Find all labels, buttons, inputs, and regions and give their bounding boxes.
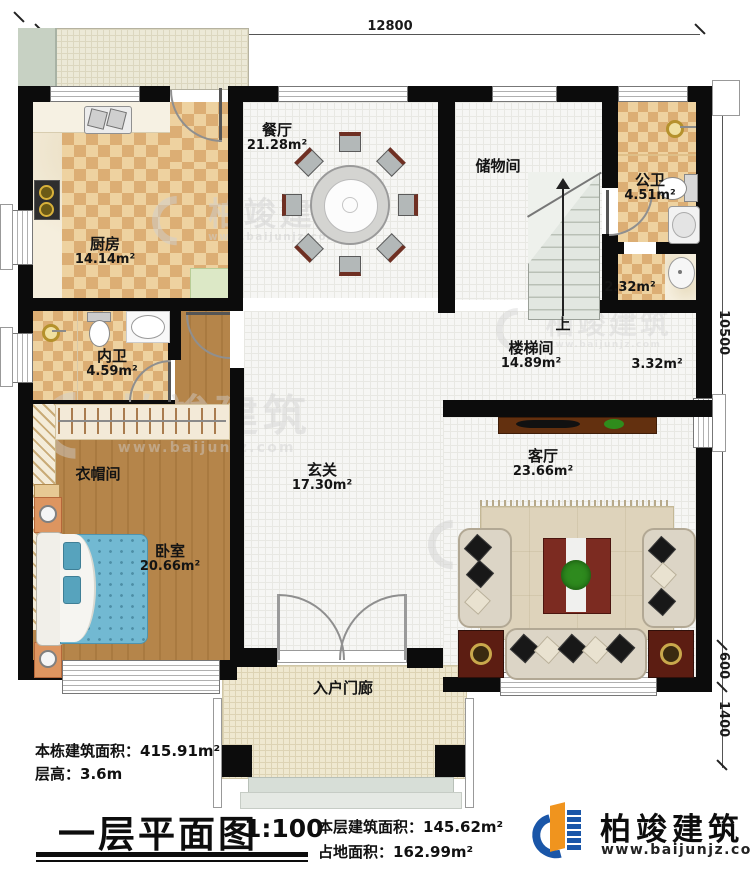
- tv-icon: [516, 420, 580, 428]
- wall: [602, 102, 618, 188]
- porch-side-rail: [465, 698, 474, 808]
- wall: [408, 86, 492, 102]
- label-inner-bath: 内卫 4.59m²: [86, 348, 137, 380]
- logo-building-orange: [550, 802, 565, 852]
- plant-icon: [561, 560, 591, 590]
- porch-pillar: [435, 745, 465, 777]
- wall: [140, 86, 170, 102]
- terrace-planter: [18, 28, 57, 88]
- toilet-icon: [89, 320, 110, 347]
- window: [492, 86, 557, 102]
- wall: [688, 86, 712, 102]
- floor-plan-canvas: 12800 10500 600 1400 柏竣建筑 www.baijunjz.c…: [0, 0, 750, 870]
- plan-title: 一层平面图: [58, 804, 258, 858]
- brand-logo-icon: [532, 802, 594, 862]
- label-foyer: 玄关 17.30m²: [292, 462, 352, 494]
- wall: [590, 300, 712, 313]
- sink-icon: [131, 315, 165, 339]
- wall: [228, 86, 278, 102]
- dining-table-center: [342, 197, 358, 213]
- wall: [438, 102, 455, 313]
- bed-pillow: [63, 576, 81, 604]
- wall: [230, 368, 244, 660]
- shower-arm: [52, 330, 66, 332]
- porch-step-2: [240, 792, 462, 809]
- building-area-note: 本栋建筑面积：415.91m²: [35, 740, 220, 761]
- wall: [18, 102, 33, 210]
- lamp-icon: [660, 643, 682, 665]
- wall: [557, 86, 618, 102]
- window: [50, 86, 140, 102]
- shower-head-icon: [666, 120, 684, 138]
- brand-url: www.baijunjz.com: [601, 842, 750, 858]
- rack-rod: [58, 420, 226, 422]
- plan-scale: 1:100: [244, 814, 324, 843]
- lamp-icon: [470, 643, 492, 665]
- footprint-note: 占地面积：162.99m²: [318, 841, 473, 862]
- dimension-top-width: 12800: [367, 19, 412, 34]
- wall: [18, 383, 33, 660]
- stove-burner: [39, 185, 54, 200]
- dimension-tick: [13, 11, 24, 22]
- bath-divider-line: [77, 311, 78, 400]
- wall: [407, 648, 443, 668]
- window: [618, 86, 688, 102]
- ac-platform: [712, 80, 740, 116]
- stairs-up-arrow: [556, 178, 570, 189]
- dining-chair: [339, 256, 361, 276]
- label-kitchen: 厨房 14.14m²: [75, 236, 135, 268]
- washer-drum: [672, 212, 696, 238]
- stairs-direction-line: [562, 188, 564, 316]
- dimension-right-bottom: 1400: [716, 701, 731, 737]
- window-sill: [0, 327, 13, 387]
- shower-head-icon: [42, 324, 60, 342]
- lamp-icon: [39, 505, 57, 523]
- wall: [443, 677, 500, 692]
- wall: [18, 86, 50, 102]
- window: [12, 333, 33, 383]
- window: [12, 210, 33, 265]
- label-bedroom: 卧室 20.66m²: [140, 543, 200, 575]
- wall: [696, 102, 712, 398]
- dining-chair: [339, 132, 361, 152]
- label-public-bath: 公卫 4.51m²: [624, 172, 675, 204]
- wall: [443, 400, 712, 417]
- label-storage: 储物间: [475, 158, 520, 175]
- window: [62, 660, 220, 694]
- label-cloakroom: 衣帽间: [75, 466, 120, 483]
- kitchen-mat: [190, 268, 230, 300]
- window: [278, 86, 408, 102]
- label-dining: 餐厅 21.28m²: [247, 122, 307, 154]
- label-stair-side: 3.32m²: [631, 358, 682, 373]
- wall: [18, 298, 243, 311]
- lamp-icon: [39, 650, 57, 668]
- dimension-right-mid: 600: [716, 652, 731, 679]
- plant-icon: [604, 419, 624, 429]
- bed-pillow: [63, 542, 81, 570]
- floor-area-note: 本层建筑面积：145.62m²: [318, 816, 503, 837]
- dining-chair: [398, 194, 418, 216]
- wall: [220, 660, 237, 680]
- dimension-right-total: 10500: [716, 310, 731, 355]
- wall: [696, 448, 712, 692]
- shower-arm: [680, 126, 696, 128]
- watermark-url: www.baijunjz.com: [546, 338, 672, 351]
- window-sill: [712, 394, 726, 452]
- window-sill: [0, 204, 13, 270]
- stairs-up-label: 上: [555, 316, 570, 333]
- label-living: 客厅 23.66m²: [513, 448, 573, 480]
- porch-pillar: [222, 745, 252, 777]
- basin-drain: [678, 270, 682, 274]
- label-porch: 入户门廊: [313, 680, 373, 697]
- logo-building-blue: [567, 810, 581, 852]
- title-underline: [36, 852, 308, 857]
- dining-chair: [282, 194, 302, 216]
- dimension-tick: [694, 23, 705, 34]
- floor-height-note: 层高：3.6m: [35, 763, 122, 784]
- wall: [657, 677, 712, 692]
- bath-divider-line: [618, 154, 696, 156]
- wall: [228, 102, 243, 298]
- label-stair-hall: 楼梯间 14.89m²: [501, 340, 561, 372]
- watermark-logo-icon: [142, 186, 212, 256]
- watermark-url: www.baijunjz.com: [118, 438, 311, 457]
- title-underline-thin: [36, 860, 308, 862]
- label-wash-area: 2.32m²: [604, 281, 655, 296]
- stove-burner: [39, 202, 54, 217]
- wall: [618, 242, 624, 254]
